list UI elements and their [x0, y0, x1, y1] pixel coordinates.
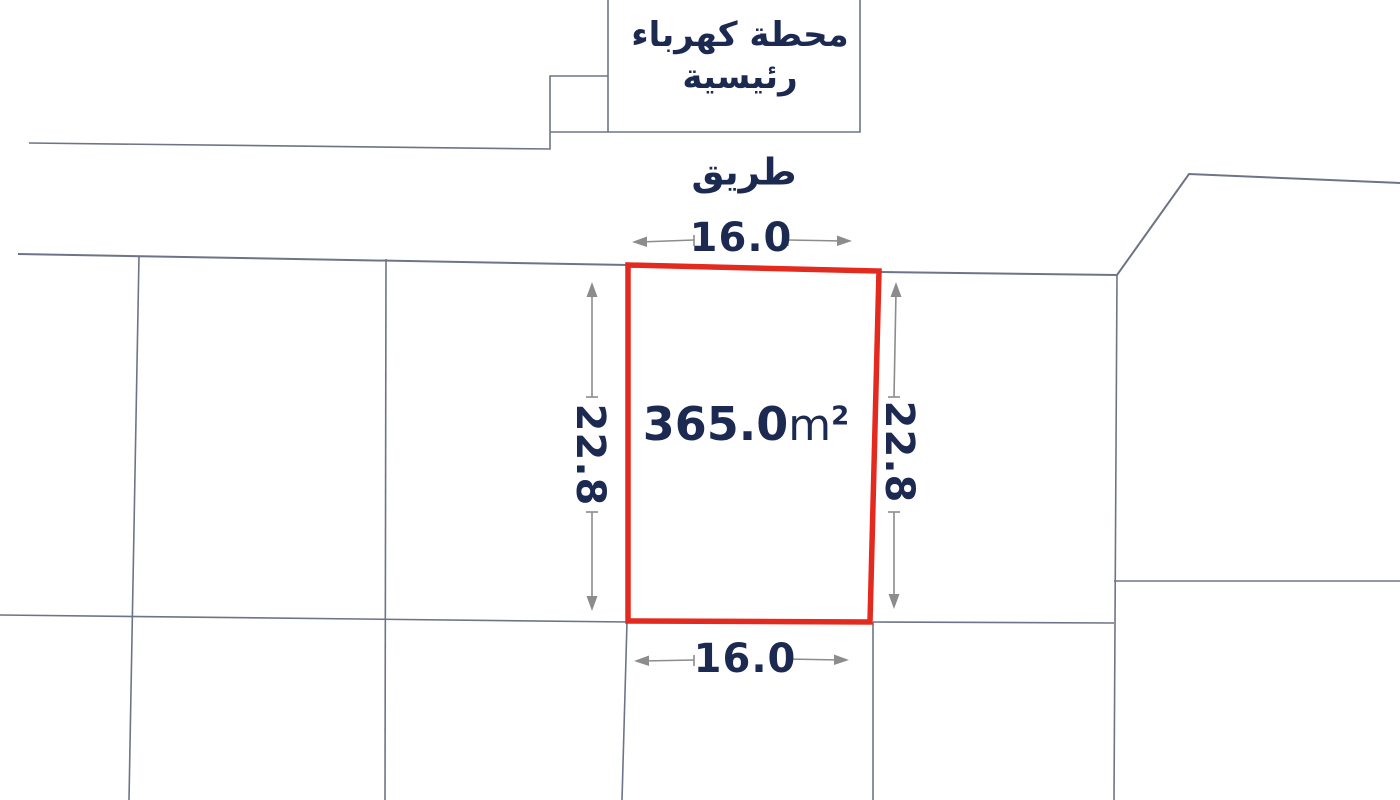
parcel-area-unit: m2 — [788, 400, 849, 451]
left-depth-label: 22.8 — [567, 404, 613, 507]
top-width-label: 16.0 — [690, 215, 793, 261]
plot-divider-1 — [129, 256, 139, 800]
road-label: طريق — [691, 151, 796, 194]
bottom-width-label: 16.0 — [694, 636, 797, 682]
station-label: محطة كهرباء رئيسية — [631, 14, 848, 98]
plots-top-boundary-right — [879, 174, 1400, 275]
right-plot-divider — [1114, 275, 1117, 800]
plot-map-canvas: محطة كهرباء رئيسية طريق 16.0 16.0 22.8 2… — [0, 0, 1400, 800]
station-label-line1: محطة كهرباء — [631, 14, 848, 56]
lower-plot-divider-left — [622, 622, 627, 800]
plot-divider-2 — [385, 259, 386, 800]
station-label-line2: رئيسية — [631, 56, 848, 98]
parcel-area-value: 365.0 — [643, 397, 789, 451]
parcel-area-label: 365.0m2 — [643, 397, 849, 451]
upper-road-boundary — [29, 76, 608, 149]
right-depth-label: 22.8 — [876, 401, 922, 504]
parcel-area-exponent: 2 — [831, 401, 849, 431]
plots-bottom-boundary-left — [0, 615, 628, 622]
plots-top-boundary-left — [18, 254, 628, 265]
plots-bottom-boundary-right — [873, 622, 1114, 623]
